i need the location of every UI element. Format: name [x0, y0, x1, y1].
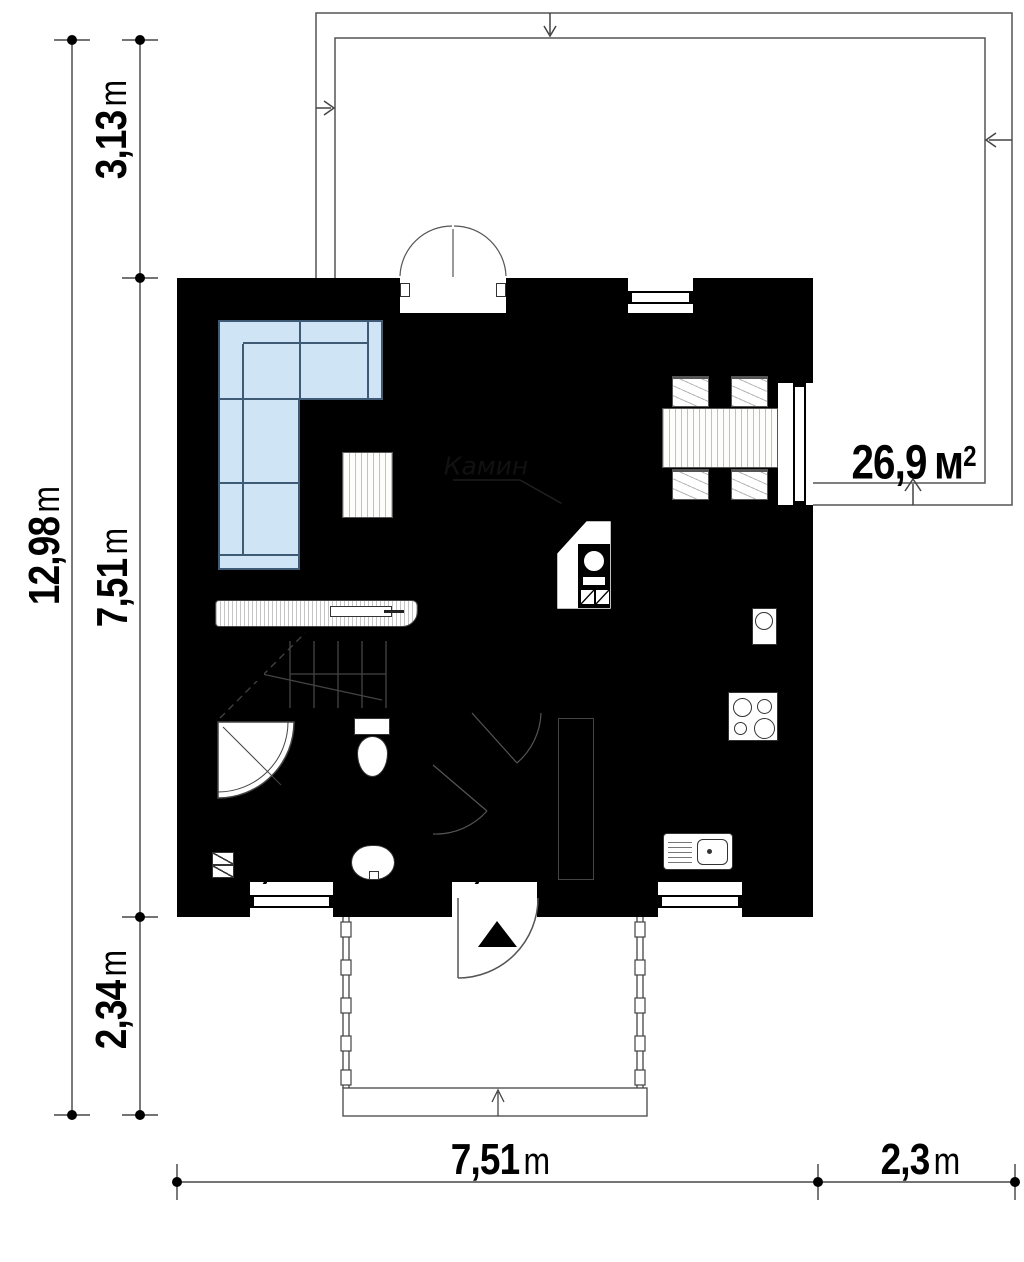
- floor-plan: 24,0м2 26,9м2 4,1м2 6,6м2 4,7м2 3,4м2 Ка…: [0, 0, 1024, 1262]
- dining-table: [662, 408, 778, 468]
- window-right-glazing: [793, 383, 806, 505]
- porch-railing-posts: [341, 922, 645, 1085]
- toilet-tank: [354, 718, 390, 735]
- washbasin-tap: [369, 871, 379, 880]
- wall-living-stairs: [212, 628, 418, 641]
- french-door-opening: [400, 278, 506, 313]
- room-label-living-dining: 24,0м2: [632, 539, 757, 594]
- french-door-jamb-right: [496, 283, 506, 297]
- chair: [731, 469, 768, 500]
- kitchen-sink-basin: [697, 839, 728, 865]
- wall-bathroom-top: [212, 708, 470, 718]
- window-top-glazing: [628, 291, 693, 304]
- wall-bathroom-hall-lower: [420, 831, 443, 882]
- wall-kitchen-top: [727, 595, 778, 608]
- dimension-bottom-house: 7,51m: [451, 1135, 550, 1185]
- french-door-arcs: [400, 226, 506, 277]
- burner: [757, 699, 772, 714]
- french-door-jamb-left: [400, 283, 410, 297]
- vent-symbol: [212, 852, 234, 865]
- kitchen-faucet: [707, 849, 712, 854]
- dimension-left-top: 3,13m: [87, 81, 137, 180]
- kitchen-sink-drainboard: [668, 840, 692, 863]
- room-label-bathroom: 4,7м2: [238, 834, 342, 889]
- corner-sofa-side: [218, 398, 300, 570]
- window-bathroom-glazing: [250, 895, 333, 908]
- sofa-back-line2: [242, 344, 244, 556]
- room-label-corridor: 4,1м2: [481, 650, 585, 705]
- sofa-back-line: [243, 342, 369, 344]
- dimension-bottom-terrace: 2,3m: [881, 1135, 960, 1185]
- room-label-kitchen: 6,6м2: [612, 770, 716, 825]
- wall-bathroom-hall-upper: [420, 718, 443, 765]
- dimension-left-bottom: 2,34m: [87, 951, 137, 1050]
- coffee-table: [342, 452, 393, 518]
- wardrobe: [558, 718, 594, 880]
- burner: [734, 722, 747, 735]
- sideboard-object-tip: [384, 610, 404, 613]
- sofa-cushion-line: [299, 322, 301, 398]
- room-label-terrace: 26,9м2: [851, 436, 976, 491]
- sideboard-object: [330, 606, 392, 617]
- room-label-hall: 3,4м2: [450, 834, 554, 889]
- sofa-armrest-line2: [220, 554, 298, 556]
- chair: [672, 469, 709, 500]
- window-kitchen-glazing: [658, 895, 742, 908]
- burner: [733, 698, 752, 717]
- column: [432, 516, 453, 538]
- wall-hall-kitchen: [592, 712, 608, 882]
- dimension-left-outer: 12,98m: [20, 487, 70, 605]
- burner: [754, 718, 775, 739]
- porch: [343, 917, 647, 1116]
- kitchen-appliance-dial: [755, 612, 773, 630]
- chair: [731, 376, 768, 407]
- fireplace-label: Камин: [444, 452, 529, 481]
- vent-symbol: [212, 865, 234, 878]
- chair: [672, 376, 709, 407]
- sofa-cushion-line2: [220, 482, 298, 484]
- sofa-armrest-line: [367, 322, 369, 398]
- dimension-left-middle: 7,51m: [88, 529, 138, 628]
